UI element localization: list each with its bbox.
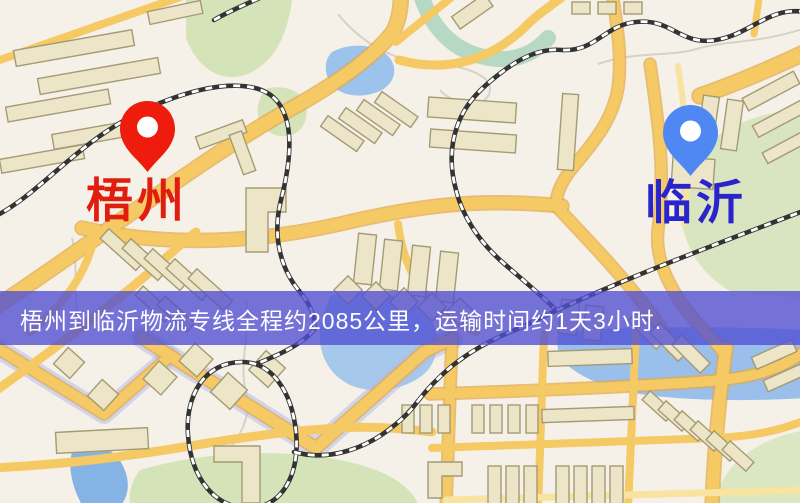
route-info-banner: 梧州到临沂物流专线全程约2085公里，运输时间约1天3小时. [0,291,800,345]
route-info-text: 梧州到临沂物流专线全程约2085公里，运输时间约1天3小时. [20,308,662,334]
map-canvas: 梧州到临沂物流专线全程约2085公里，运输时间约1天3小时. 梧州 临沂 [0,0,800,503]
origin-pin-hole [137,117,158,138]
destination-pin-hole [680,121,701,142]
origin-city-label: 梧州 [86,174,188,227]
route-map-image[interactable]: 梧州到临沂物流专线全程约2085公里，运输时间约1天3小时. 梧州 临沂 [0,0,800,503]
destination-city-label: 临沂 [645,176,747,229]
